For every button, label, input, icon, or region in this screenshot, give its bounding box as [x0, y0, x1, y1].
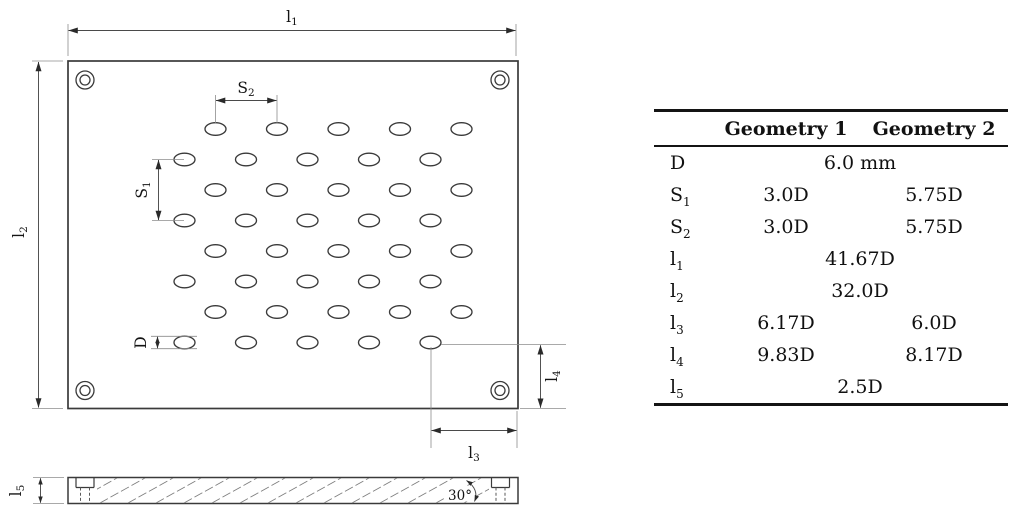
l3-label: l3 — [468, 444, 480, 464]
plate-hole — [328, 245, 349, 258]
table-row: l3 6.17D 6.0D — [654, 307, 1008, 339]
table-row: l1 41.67D — [654, 243, 1008, 275]
plate-hole — [174, 336, 195, 349]
table-header-row: Geometry 1 Geometry 2 — [654, 112, 1008, 147]
hatch-line — [212, 478, 257, 503]
plate-hole — [267, 245, 288, 258]
l2-dimension: l2 — [10, 61, 63, 409]
hatch-line — [352, 478, 397, 503]
table-row: D 6.0 mm — [654, 147, 1008, 179]
row-label: l5 — [654, 376, 712, 398]
plate-hole — [451, 245, 472, 258]
plate-hole — [359, 214, 380, 227]
corner-screw-holes — [76, 71, 509, 400]
plate-hole — [328, 306, 349, 319]
plate-hole — [359, 275, 380, 288]
l2-label: l2 — [10, 226, 30, 238]
hatch-line — [296, 478, 341, 503]
plate-hole — [205, 245, 226, 258]
span-value: 2.5D — [712, 376, 1008, 398]
plate-hole — [236, 275, 257, 288]
plate-hole — [297, 336, 318, 349]
plate-hole — [205, 184, 226, 197]
geometry-table: Geometry 1 Geometry 2 D 6.0 mm S1 3.0D 5… — [654, 109, 1008, 406]
plate-hole — [236, 153, 257, 166]
countersink-left — [76, 478, 94, 504]
l5-label: l5 — [7, 485, 27, 497]
row-label: l3 — [654, 312, 712, 334]
plate-hole — [174, 275, 195, 288]
plate-hole — [451, 306, 472, 319]
hatch-line — [184, 478, 229, 503]
row-label: l2 — [654, 280, 712, 302]
g1-value: 3.0D — [712, 184, 860, 206]
plate-hole — [236, 336, 257, 349]
hatch-line — [128, 478, 173, 503]
plate-hole — [390, 306, 411, 319]
span-value: 6.0 mm — [712, 152, 1008, 174]
plate-hole — [420, 153, 441, 166]
s2-dimension: S2 — [216, 79, 278, 123]
span-value: 32.0D — [712, 280, 1008, 302]
g2-value: 5.75D — [860, 184, 1008, 206]
g1-value: 3.0D — [712, 216, 860, 238]
plate-hole — [205, 306, 226, 319]
plate-hole — [390, 245, 411, 258]
plate-front-view — [68, 61, 518, 409]
plate-hole — [390, 184, 411, 197]
table-row: l4 9.83D 8.17D — [654, 339, 1008, 371]
hatch-line — [100, 478, 145, 503]
plate-hole — [390, 123, 411, 136]
plate-hole — [205, 123, 226, 136]
row-label: S2 — [654, 216, 712, 238]
hatch-pattern — [72, 478, 509, 503]
plate-hole — [267, 123, 288, 136]
hole-array — [174, 123, 472, 349]
l3-dimension: l3 — [431, 347, 517, 464]
table-row: l5 2.5D — [654, 371, 1008, 403]
plate-hole — [267, 306, 288, 319]
g2-value: 6.0D — [860, 312, 1008, 334]
l4-label: l4 — [543, 370, 563, 382]
plate-hole — [359, 153, 380, 166]
angle-label: 30° — [448, 488, 472, 504]
plate-hole — [420, 275, 441, 288]
s1-label: S1 — [133, 181, 153, 198]
plate-hole — [236, 214, 257, 227]
l1-label: l1 — [286, 8, 298, 28]
countersink-right — [492, 478, 510, 504]
col-header-geometry1: Geometry 1 — [712, 118, 860, 140]
span-value: 41.67D — [712, 248, 1008, 270]
g1-value: 9.83D — [712, 344, 860, 366]
g2-value: 8.17D — [860, 344, 1008, 366]
table-row: S1 3.0D 5.75D — [654, 179, 1008, 211]
g2-value: 5.75D — [860, 216, 1008, 238]
plate-hole — [267, 184, 288, 197]
s2-label: S2 — [237, 79, 254, 99]
hatch-line — [380, 478, 425, 503]
plate-hole — [451, 123, 472, 136]
plate-drawing: l1 l2 S2 S1 D — [0, 0, 640, 522]
plate-hole — [328, 184, 349, 197]
table-row: l2 32.0D — [654, 275, 1008, 307]
l1-dimension: l1 — [68, 8, 516, 56]
row-label: D — [654, 152, 712, 174]
d-label: D — [132, 336, 150, 348]
s1-dimension: S1 — [133, 160, 184, 221]
row-label: l4 — [654, 344, 712, 366]
table-row: S2 3.0D 5.75D — [654, 211, 1008, 243]
plate-hole — [451, 184, 472, 197]
plate-hole — [297, 275, 318, 288]
g1-value: 6.17D — [712, 312, 860, 334]
hatch-line — [156, 478, 201, 503]
plate-hole — [420, 336, 441, 349]
plate-hole — [297, 153, 318, 166]
plate-hole — [328, 123, 349, 136]
angle-annotation: 30° — [444, 481, 477, 505]
row-label: l1 — [654, 248, 712, 270]
hatch-line — [268, 478, 313, 503]
l5-dimension: l5 — [7, 478, 64, 504]
plate-hole — [420, 214, 441, 227]
figure-plate-geometry: l1 l2 S2 S1 D — [0, 0, 1024, 522]
col-header-geometry2: Geometry 2 — [860, 118, 1008, 140]
plate-hole — [297, 214, 318, 227]
hatch-line — [324, 478, 369, 503]
plate-hole — [359, 336, 380, 349]
row-label: S1 — [654, 184, 712, 206]
hatch-line — [240, 478, 285, 503]
